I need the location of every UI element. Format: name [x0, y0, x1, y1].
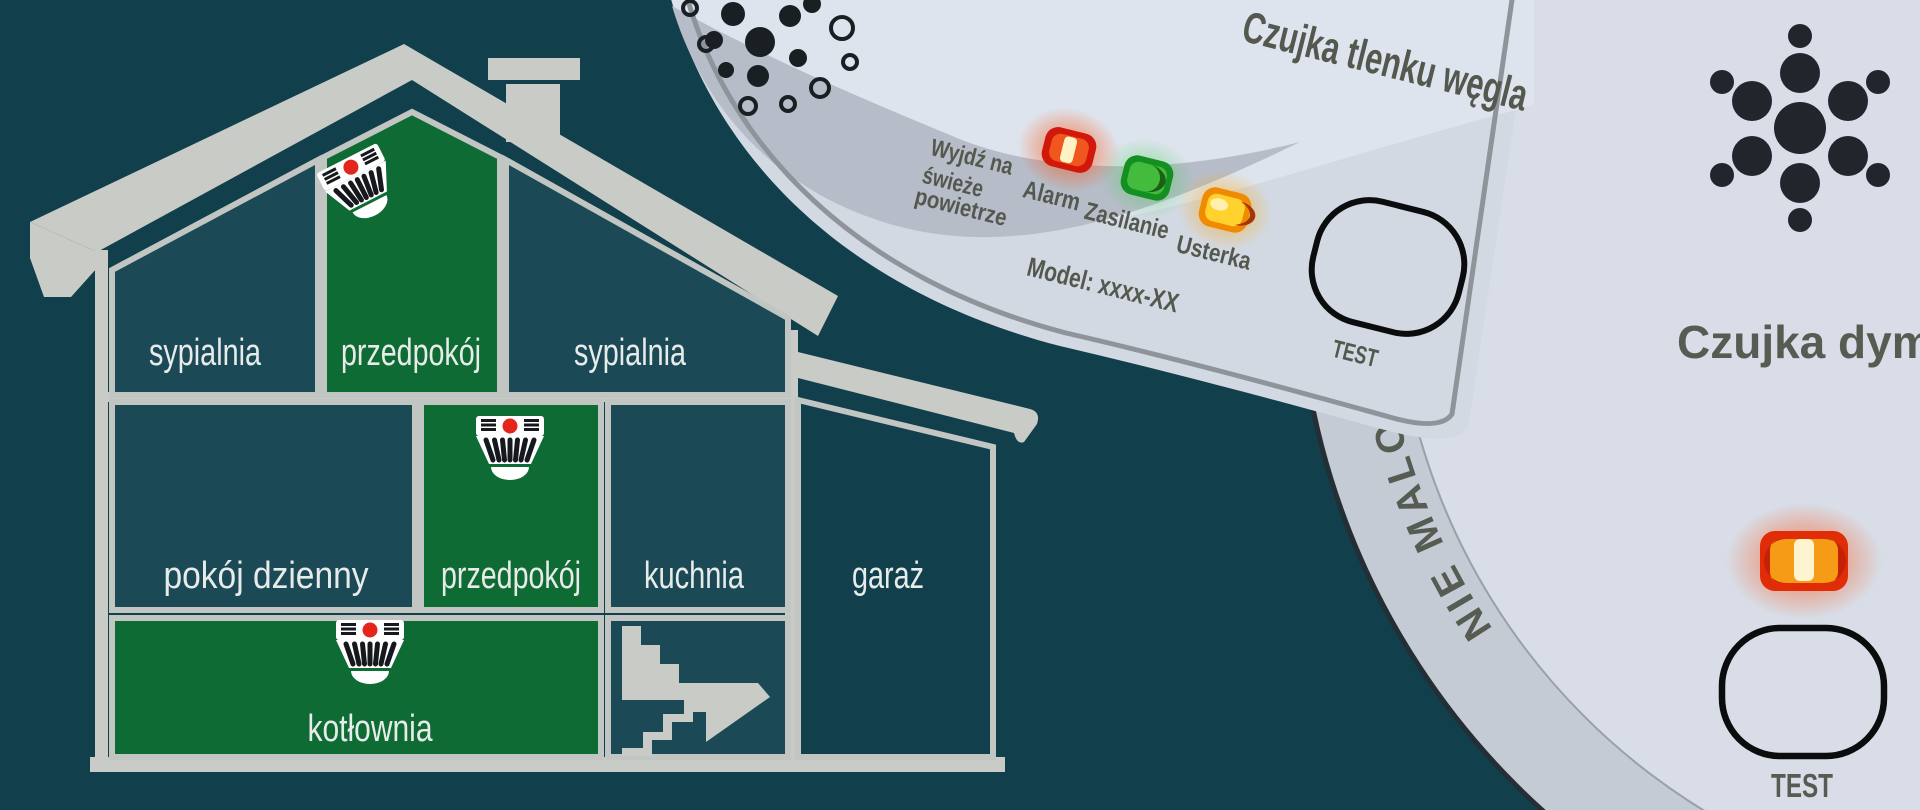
label-sypialnia-left: sypialnia [149, 332, 262, 374]
label-sypialnia-right: sypialnia [574, 332, 687, 374]
label-przedpokoj-attic: przedpokój [341, 332, 481, 374]
label-kotlownia: kotłownia [308, 708, 434, 750]
smoke-alarm-led [1726, 503, 1882, 619]
label-kuchnia: kuchnia [644, 555, 745, 597]
label-pokoj-dzienny: pokój dzienny [164, 555, 369, 597]
label-garaz: garaż [852, 555, 924, 597]
safety-infographic: Czujka dymu NIE MALOW TEST [0, 0, 1920, 810]
smoke-detector-title: Czujka dymu [1677, 316, 1920, 368]
infographic-canvas: Czujka dymu NIE MALOW TEST [0, 0, 1920, 810]
label-przedpokoj-ground: przedpokój [441, 555, 581, 597]
smoke-test-label: TEST [1771, 767, 1833, 804]
